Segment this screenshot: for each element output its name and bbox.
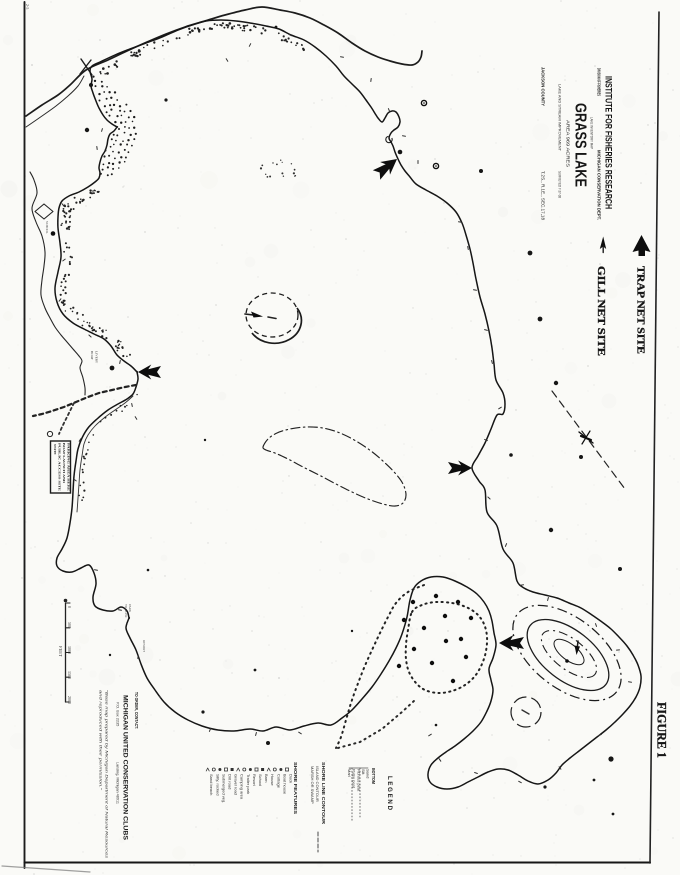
svg-text:0: 0 bbox=[67, 606, 72, 608]
svg-text:GILL NET SITE: GILL NET SITE bbox=[595, 266, 607, 356]
svg-text:GRASS LAKE: GRASS LAKE bbox=[572, 103, 589, 187]
svg-text:INSTITUTE FOR FISHERIES RESEAR: INSTITUTE FOR FISHERIES RESEARCH bbox=[604, 76, 614, 209]
svg-text:Dirt road: Dirt road bbox=[228, 774, 233, 789]
svg-text:JACKSON COUNTY: JACKSON COUNTY bbox=[540, 67, 546, 107]
svg-text:SCHOOL: SCHOOL bbox=[45, 221, 49, 234]
svg-text:SURVEYED 7-27-38: SURVEYED 7-27-38 bbox=[558, 171, 562, 198]
svg-text:"Base map prepared by Michigan: "Base map prepared by Michigan Departmen… bbox=[105, 690, 109, 858]
svg-text:Sand beach: Sand beach bbox=[209, 774, 214, 795]
svg-text:and reproduced with their perm: and reproduced with their permission." bbox=[99, 690, 103, 791]
svg-text:LAKE INVENTORY MAP: LAKE INVENTORY MAP bbox=[590, 117, 594, 149]
svg-text:L E G E N D: L E G E N D bbox=[386, 776, 393, 810]
svg-text:Barn: Barn bbox=[264, 774, 269, 782]
svg-text:T.2S., R.1E., SEC.17,18: T.2S., R.1E., SEC.17,18 bbox=[541, 171, 546, 221]
svg-text:School: School bbox=[258, 774, 263, 786]
svg-text:500: 500 bbox=[67, 622, 72, 628]
svg-text:DIVISION OF FISHERIES: DIVISION OF FISHERIES bbox=[597, 68, 602, 96]
svg-text:Boat house: Boat house bbox=[282, 774, 287, 795]
svg-text:AREA 969 ACRES: AREA 969 ACRES bbox=[566, 120, 571, 167]
svg-text:Camping area: Camping area bbox=[240, 774, 245, 800]
svg-text:PARKING AREA HERE: PARKING AREA HERE bbox=[67, 443, 71, 492]
svg-text:Resort: Resort bbox=[252, 774, 257, 787]
svg-text:Marl: Marl bbox=[347, 769, 352, 777]
svg-text:P.O. Box 2235: P.O. Box 2235 bbox=[116, 702, 120, 726]
svg-text:BOAT LAUNCH AND: BOAT LAUNCH AND bbox=[62, 443, 66, 484]
svg-text:2-5: 2-5 bbox=[25, 4, 30, 9]
svg-text:Lansing, Michigan 48911: Lansing, Michigan 48911 bbox=[116, 762, 120, 804]
svg-text:BOAT: BOAT bbox=[90, 351, 94, 361]
svg-text:House: House bbox=[270, 774, 275, 786]
svg-text:1000: 1000 bbox=[67, 646, 72, 654]
svg-text:MARSH OR SWAMP: MARSH OR SWAMP bbox=[310, 766, 315, 804]
svg-text:Gravel road: Gravel road bbox=[234, 774, 239, 795]
svg-text:MICHIGAN UNITED CONSERVATION C: MICHIGAN UNITED CONSERVATION CLUBS bbox=[122, 695, 129, 840]
svg-text:RESORT: RESORT bbox=[142, 640, 146, 652]
svg-text:LAKE AND STREAM IMPROVEMENT: LAKE AND STREAM IMPROVEMENT bbox=[558, 84, 562, 152]
svg-text:Submerged veg.: Submerged veg. bbox=[221, 774, 226, 803]
svg-text:Silty, rocked: Silty, rocked bbox=[215, 774, 220, 796]
svg-text:SHORE FEATURES: SHORE FEATURES bbox=[292, 762, 298, 815]
svg-text:Dock: Dock bbox=[289, 774, 294, 783]
svg-text:FIGURE 1: FIGURE 1 bbox=[655, 702, 669, 758]
svg-text:LIVERY: LIVERY bbox=[95, 351, 99, 364]
svg-text:Trailer park: Trailer park bbox=[246, 774, 251, 794]
svg-text:1500: 1500 bbox=[67, 671, 72, 679]
svg-text:MICHIGAN CONSERVATION DEPT.: MICHIGAN CONSERVATION DEPT. bbox=[597, 150, 602, 220]
svg-text:TRAILER: TRAILER bbox=[124, 604, 128, 618]
svg-text:TRAP NET SITE: TRAP NET SITE bbox=[635, 266, 647, 354]
svg-text:SHORE LINE CONTOUR: SHORE LINE CONTOUR bbox=[321, 762, 326, 825]
svg-text:TO ORDER, CONTACT:: TO ORDER, CONTACT: bbox=[134, 692, 139, 729]
svg-text:PARK: PARK bbox=[128, 604, 132, 613]
svg-text:Cottage: Cottage bbox=[276, 774, 281, 789]
svg-text:2000: 2000 bbox=[67, 696, 72, 704]
svg-text:STATE: STATE bbox=[53, 444, 57, 455]
svg-text:FEET: FEET bbox=[58, 646, 63, 657]
svg-text:PUBLIC ACCESS SITE: PUBLIC ACCESS SITE bbox=[58, 443, 62, 492]
